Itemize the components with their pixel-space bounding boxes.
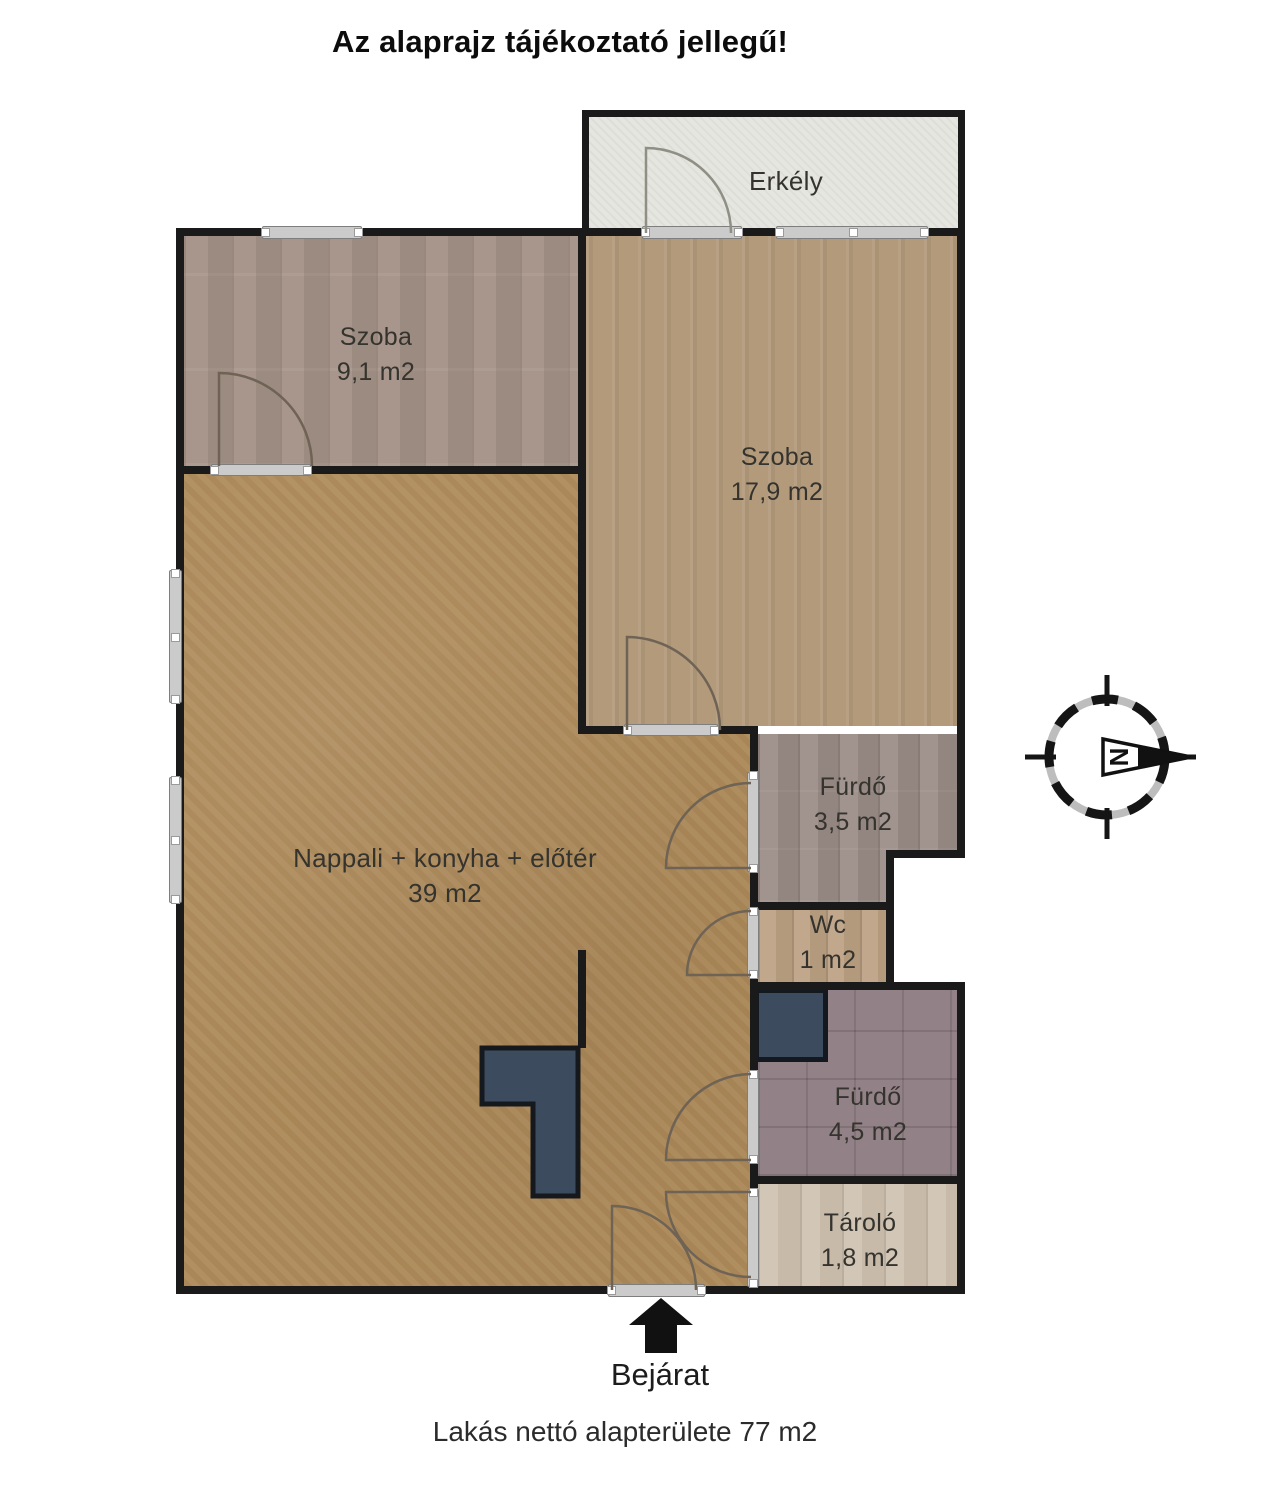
compass-icon: N	[1025, 675, 1196, 839]
threshold-entrance	[608, 1284, 705, 1297]
room-name: Nappali + konyha + előtér	[195, 841, 695, 876]
room-name: Fürdő	[753, 770, 953, 805]
wall-szoba-divider	[578, 228, 586, 734]
compass-north-letter: N	[1104, 748, 1134, 767]
wall-wc-furdo45	[750, 982, 894, 990]
window-szoba179-top	[776, 226, 928, 239]
room-area: 1 m2	[753, 943, 903, 978]
room-name: Fürdő	[768, 1080, 968, 1115]
room-label-furdo-4-5: Fürdő 4,5 m2	[768, 1080, 968, 1150]
room-area: 1,8 m2	[760, 1241, 960, 1276]
floor-plan-page: Az alaprajz tájékoztató jellegű!	[0, 0, 1280, 1486]
room-label-tarolo: Tároló 1,8 m2	[760, 1206, 960, 1276]
wall-notch-bottom	[886, 982, 965, 990]
wall-outer-bottom	[176, 1286, 965, 1294]
room-label-szoba-17-9: Szoba 17,9 m2	[677, 440, 877, 510]
threshold-erkely-door	[642, 226, 742, 239]
room-name: Wc	[753, 908, 903, 943]
wall-erkely-right	[958, 110, 965, 233]
wall-notch-top	[886, 850, 965, 858]
room-name: Erkély	[686, 164, 886, 199]
wall-erkely-top	[582, 110, 965, 117]
wall-kitchen-stub	[578, 950, 586, 1048]
net-area-label: Lakás nettó alapterülete 77 m2	[320, 1416, 930, 1448]
wall-outer-left	[176, 228, 184, 1294]
room-area: 3,5 m2	[753, 805, 953, 840]
threshold-szoba179-door	[624, 724, 718, 736]
wall-outer-right-upper	[957, 228, 965, 858]
wall-erkely-left	[582, 110, 589, 233]
room-label-szoba-9-1: Szoba 9,1 m2	[276, 320, 476, 390]
threshold-tarolo-door	[747, 1189, 759, 1287]
room-name: Szoba	[677, 440, 877, 475]
room-label-furdo-3-5: Fürdő 3,5 m2	[753, 770, 953, 840]
room-label-nappali: Nappali + konyha + előtér 39 m2	[195, 841, 695, 911]
room-name: Szoba	[276, 320, 476, 355]
entrance-label: Bejárat	[555, 1357, 765, 1393]
room-area: 39 m2	[195, 876, 695, 911]
plan-disclaimer-title: Az alaprajz tájékoztató jellegű!	[170, 24, 950, 60]
room-label-wc: Wc 1 m2	[753, 908, 903, 978]
window-nappali-left-lower	[169, 777, 182, 903]
entrance-arrow-icon	[629, 1298, 693, 1325]
room-name: Tároló	[760, 1206, 960, 1241]
room-floor-furdo-3-5-lower	[758, 850, 886, 902]
threshold-szoba91-door	[211, 464, 311, 476]
window-nappali-left-upper	[169, 570, 182, 703]
threshold-furdo45-door	[747, 1071, 759, 1163]
room-area: 17,9 m2	[677, 475, 877, 510]
wall-furdo45-tarolo	[750, 1176, 965, 1184]
entrance-arrow-stem	[645, 1324, 677, 1353]
room-area: 4,5 m2	[768, 1115, 968, 1150]
room-area: 9,1 m2	[276, 355, 476, 390]
window-szoba91-top	[262, 226, 362, 239]
shower-fixture	[754, 988, 828, 1062]
room-label-erkely: Erkély	[686, 164, 886, 199]
